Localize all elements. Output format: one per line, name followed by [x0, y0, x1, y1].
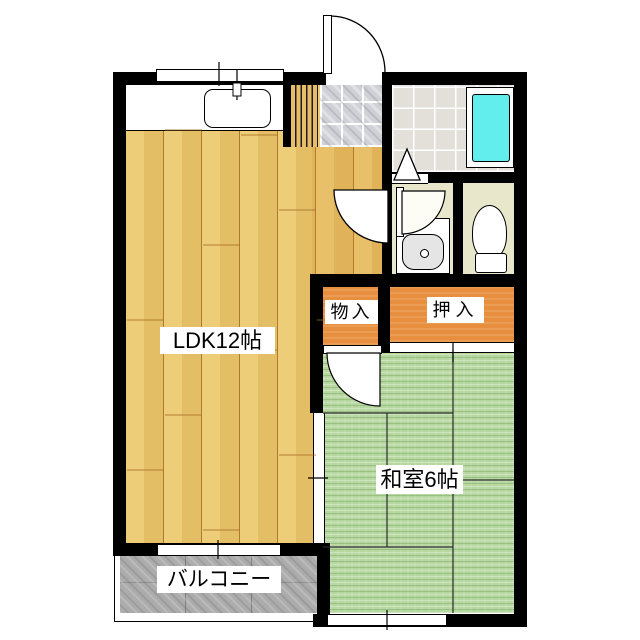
kitchen-window [156, 69, 284, 82]
ldk-label-text: LDK12帖 [173, 330, 262, 352]
entrance-threshold [326, 72, 382, 85]
oshiire-label-text: 押入 [433, 301, 479, 319]
bathtub [472, 94, 510, 162]
monoiri-door-leaf [323, 345, 382, 354]
washitsu-label-text: 和室6帖 [380, 469, 458, 491]
tatami-sliding-door [313, 413, 325, 543]
ldk-south-window [157, 544, 281, 556]
genkan-tile-floor [320, 80, 382, 147]
balcony-label-text: バルコニー [167, 569, 272, 590]
shoe-cabinet [291, 80, 318, 147]
wall-left [113, 72, 126, 556]
monoiri-label: 物入 [325, 300, 378, 324]
oshiire-label: 押入 [427, 297, 484, 323]
wall-wash-toilet [453, 183, 463, 274]
wall-mid-horizontal [310, 274, 514, 287]
hallway-floor [312, 147, 382, 274]
kitchen-sink [204, 89, 271, 128]
wall-right [514, 72, 527, 627]
wall-closet-divider [378, 287, 390, 353]
wall-slat-stub [283, 72, 291, 147]
wall-genkan-bath [382, 72, 392, 285]
entrance-door-leaf [323, 15, 332, 74]
washbasin-drain [420, 249, 429, 258]
oshiire-fusuma [390, 342, 514, 353]
bath-door-threshold [392, 173, 428, 184]
toilet-tank [475, 253, 507, 273]
ldk-label: LDK12帖 [160, 327, 275, 354]
washitsu-label: 和室6帖 [376, 465, 463, 494]
toilet-bowl [472, 205, 507, 259]
wall-corner-block [317, 543, 330, 614]
wall-closet-left [310, 285, 323, 413]
washroom-door-leaf [396, 187, 404, 237]
balcony-label: バルコニー [157, 566, 281, 593]
tatami-south-window [327, 614, 447, 626]
entrance-door-arc [331, 16, 385, 72]
floor-plan: LDK12帖 和室6帖 物入 押入 バルコニー [0, 0, 640, 640]
monoiri-label-text: 物入 [331, 303, 373, 321]
